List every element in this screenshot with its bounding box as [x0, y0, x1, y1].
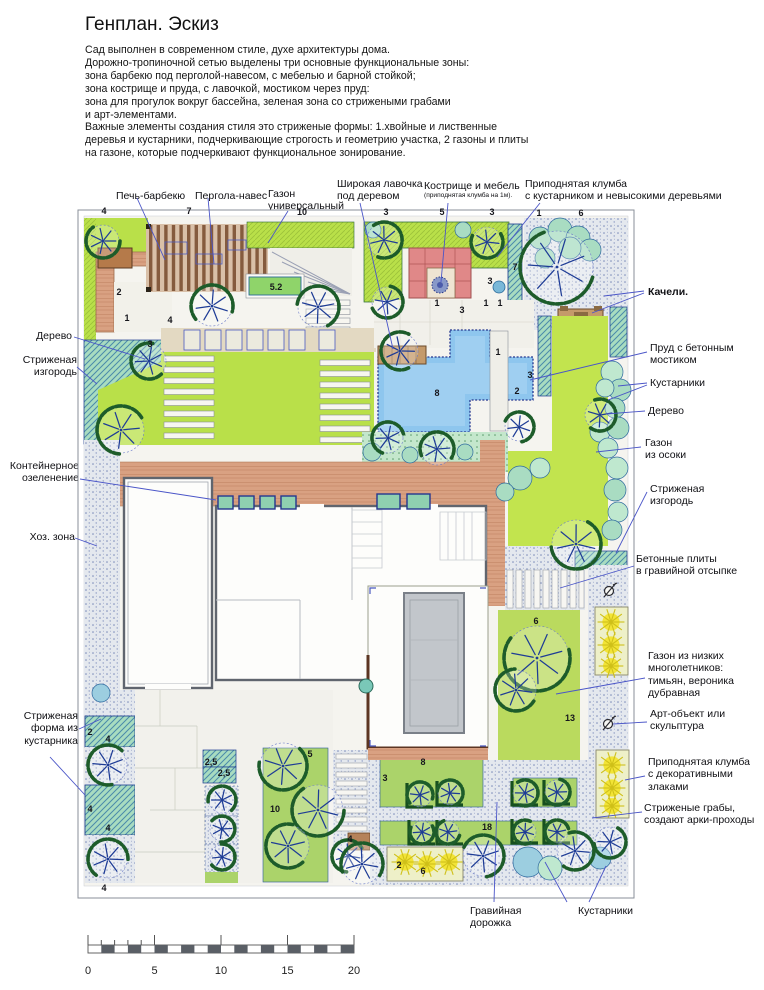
plan-dimension-number: 4: [87, 804, 92, 814]
plan-dimension-number: 1: [434, 298, 439, 308]
scale-tick-label: 20: [348, 965, 360, 977]
plan-dimension-number: 10: [270, 804, 280, 814]
plan-dimension-number: 6: [533, 616, 538, 626]
plan-dimension-number: 4: [105, 823, 110, 833]
tree-symbol: [292, 785, 344, 836]
plan-dimension-number: 2: [87, 727, 92, 737]
plan-dimension-number: 5.2: [270, 282, 283, 292]
scale-bar: 05101520: [85, 935, 360, 977]
round-table: [359, 679, 373, 693]
tree-symbol: [551, 520, 601, 569]
plan-dimension-number: 10: [297, 207, 307, 217]
tree-symbol: [436, 821, 459, 844]
plan-dimension-number: 18: [482, 822, 492, 832]
shrub-symbol: [402, 447, 418, 463]
plan-dimension-number: 4: [347, 834, 352, 844]
plan-dimension-number: 2: [396, 860, 401, 870]
plan-dimension-number: 13: [565, 713, 575, 723]
plan-dimension-number: 1: [495, 347, 500, 357]
plan-dimension-number: 8: [420, 757, 425, 767]
shrub-symbol: [457, 444, 473, 460]
shrub-symbol: [538, 856, 562, 880]
shrub-symbol: [530, 458, 550, 478]
plan-dimension-number: 3: [527, 370, 532, 380]
universal-lawn-strip: [247, 222, 354, 248]
tree-symbol: [259, 743, 307, 790]
tree-symbol: [520, 231, 593, 304]
pond-bridge: [490, 331, 508, 431]
plan-dimension-number: 1: [124, 313, 129, 323]
plan-dimension-number: 7: [186, 206, 191, 216]
plan-dimension-number: 1: [536, 208, 541, 218]
plan-dimension-number: 2: [116, 287, 121, 297]
shrub-symbol: [496, 483, 514, 501]
site-plan-drawing: 4710353165.2732143131181326132,52,551083…: [0, 0, 764, 990]
shrub-symbol: [596, 379, 614, 397]
plan-dimension-number: 3: [382, 773, 387, 783]
plan-dimension-number: 3: [459, 305, 464, 315]
concrete-planks: [505, 568, 585, 610]
plan-dimension-number: 5: [439, 207, 444, 217]
pool: [404, 593, 464, 733]
scale-tick-label: 10: [215, 965, 227, 977]
plan-dimension-number: 6: [578, 208, 583, 218]
plan-dimension-number: 4: [167, 315, 172, 325]
garage-outline: [124, 478, 212, 688]
tree-symbol: [495, 669, 536, 711]
plan-dimension-number: 2: [514, 386, 519, 396]
shrub-symbol: [92, 684, 110, 702]
plan-dimension-number: 4: [101, 206, 106, 216]
plan-dimension-number: 3: [147, 339, 152, 349]
plan-dimension-number: 2,5: [205, 757, 218, 767]
plan-dimension-number: 6: [420, 866, 425, 876]
scale-tick-label: 5: [151, 965, 157, 977]
garden-masterplan-sheet: { "title": "Генплан. Эскиз", "descriptio…: [0, 0, 764, 990]
tree-symbol: [372, 422, 403, 453]
plan-dimension-number: 3: [487, 276, 492, 286]
shrub-symbol: [608, 502, 628, 522]
plan-dimension-number: 7: [512, 262, 517, 272]
shrub-symbol: [602, 520, 622, 540]
plan-dimension-number: 1: [483, 298, 488, 308]
shrub-symbol: [598, 438, 618, 458]
tree-symbol: [437, 780, 463, 805]
scale-tick-label: 15: [281, 965, 293, 977]
shrub-symbol: [604, 479, 626, 501]
tree-symbol: [505, 412, 534, 442]
hoz-zone-gravel: [84, 440, 120, 692]
plan-dimension-number: 3: [383, 207, 388, 217]
plan-dimension-number: 1: [497, 298, 502, 308]
plan-dimension-number: 3: [489, 207, 494, 217]
tree-symbol: [407, 782, 433, 807]
scale-tick-label: 0: [85, 965, 91, 977]
shrub-symbol: [455, 222, 471, 238]
shrub-symbol: [606, 457, 628, 479]
plan-dimension-number: 5: [307, 749, 312, 759]
plan-dimension-number: 8: [434, 388, 439, 398]
plan-dimension-number: 2,5: [218, 768, 231, 778]
plan-dimension-number: 4: [101, 883, 106, 893]
plan-dimension-number: 4: [105, 734, 110, 744]
